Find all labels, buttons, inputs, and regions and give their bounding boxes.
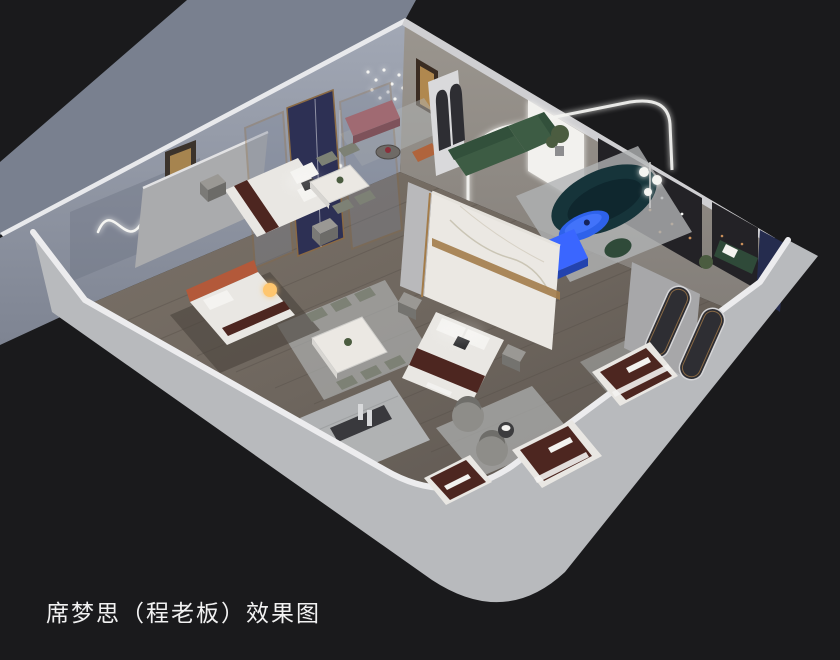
plant-small xyxy=(699,255,713,269)
vase xyxy=(367,410,372,426)
glow-sphere-lamp xyxy=(263,283,277,297)
caption-text: 席梦思（程老板）效果图 xyxy=(46,594,321,628)
vase xyxy=(358,404,363,420)
rendering-page: 席梦思（程老板）效果图 xyxy=(0,0,840,660)
showroom-rendering xyxy=(0,0,840,660)
